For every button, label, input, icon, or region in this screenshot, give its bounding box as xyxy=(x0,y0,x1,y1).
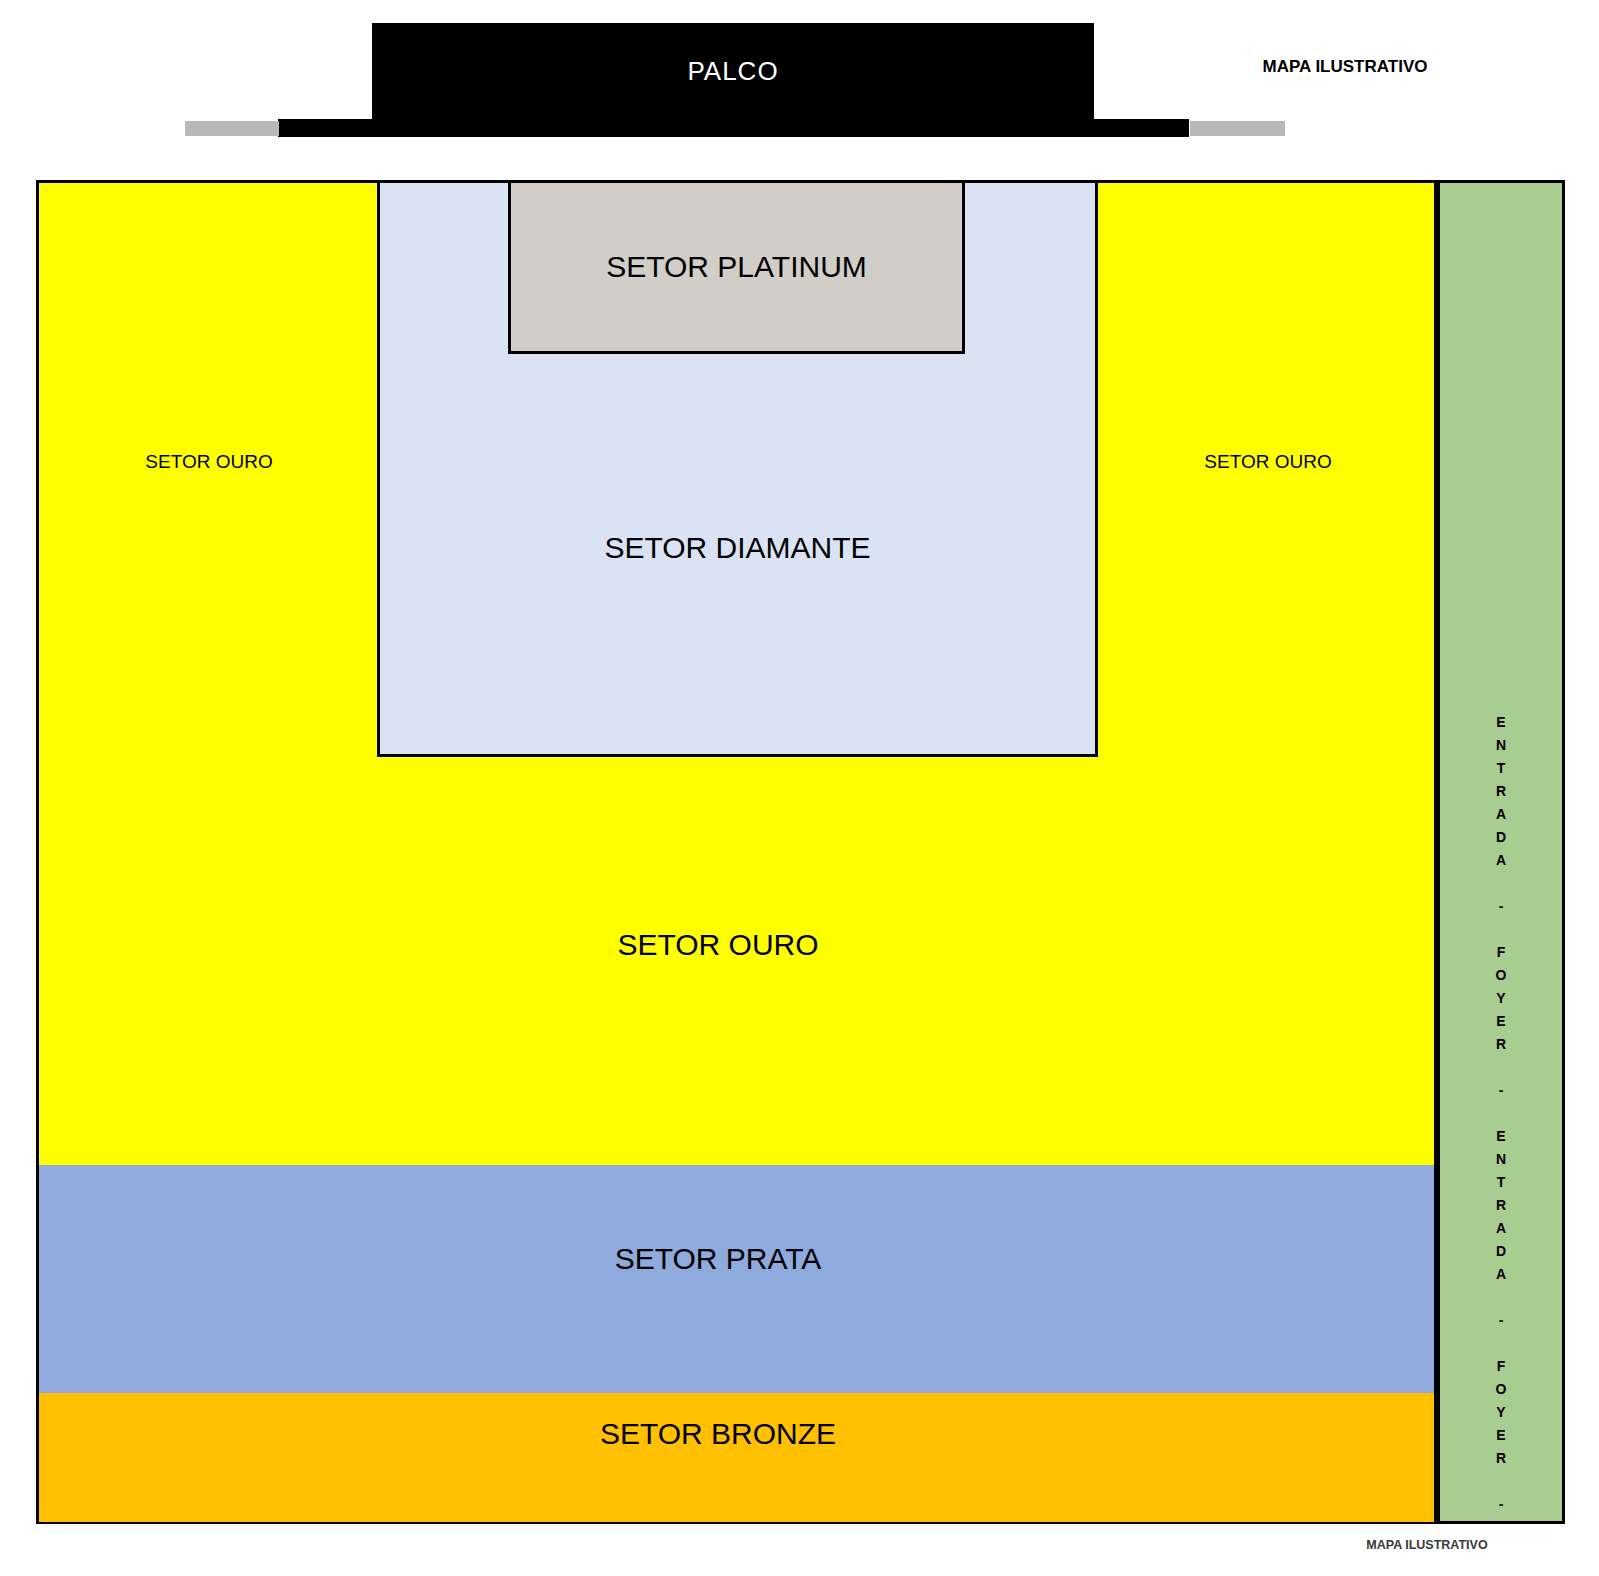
map-title-top: MAPA ILUSTRATIVO xyxy=(1240,57,1450,77)
stage: PALCO xyxy=(372,23,1094,119)
stage-apron xyxy=(278,119,1189,137)
entrance-foyer-vertical-label: E N T R A D A - F O Y E R - E N T R A D … xyxy=(1440,183,1562,1516)
sector-bronze-label: SETOR BRONZE xyxy=(418,1417,1018,1449)
stage-wing-right xyxy=(1190,121,1285,136)
venue-map: PALCO MAPA ILUSTRATIVO SETOR DIAMANTE SE… xyxy=(0,0,1599,1576)
sector-bronze xyxy=(39,1393,1434,1522)
sector-prata-label: SETOR PRATA xyxy=(418,1242,1018,1274)
sector-ouro-label-left: SETOR OURO xyxy=(84,451,334,473)
sector-prata xyxy=(39,1165,1434,1393)
map-title-bottom: MAPA ILUSTRATIVO xyxy=(1327,1538,1527,1552)
sector-ouro-area: SETOR DIAMANTE SETOR PLATINUM SETOR OURO… xyxy=(36,180,1437,1524)
sector-platinum: SETOR PLATINUM xyxy=(508,180,965,354)
entrance-foyer-strip: E N T R A D A - F O Y E R - E N T R A D … xyxy=(1437,180,1565,1524)
sector-ouro-label-right: SETOR OURO xyxy=(1143,451,1393,473)
sector-platinum-label: SETOR PLATINUM xyxy=(606,250,867,284)
sector-diamante-label: SETOR DIAMANTE xyxy=(380,531,1095,565)
stage-label: PALCO xyxy=(687,56,778,87)
sector-ouro-label: SETOR OURO xyxy=(418,928,1018,960)
stage-wing-left xyxy=(185,121,279,136)
